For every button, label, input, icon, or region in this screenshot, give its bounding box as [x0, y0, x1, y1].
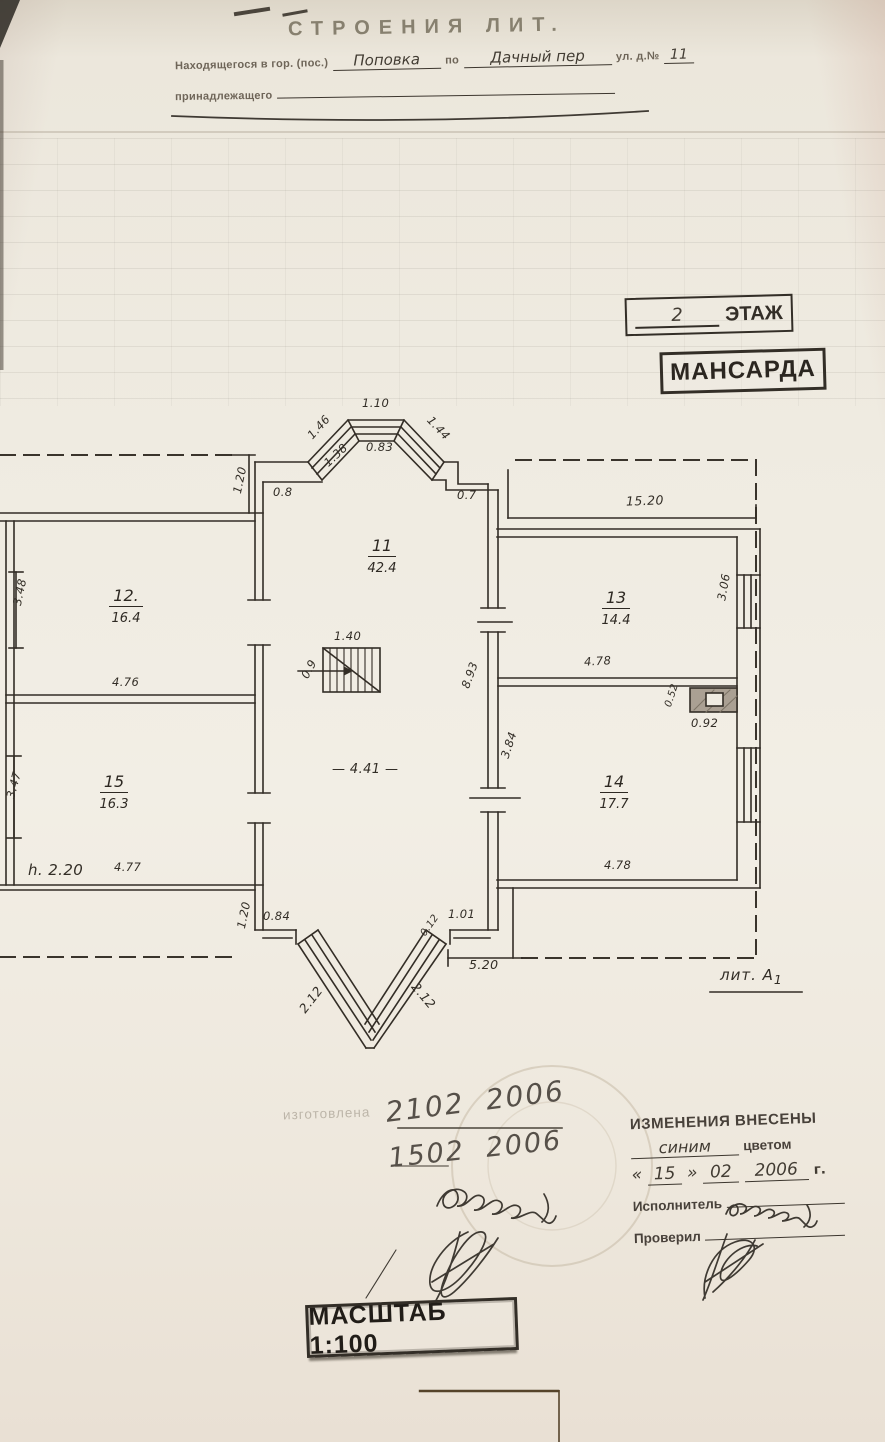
executor-line: Исполнитель	[632, 1188, 873, 1216]
house-number-fill: 11	[664, 46, 694, 64]
quote-left: «	[631, 1165, 642, 1185]
dim-room14-width: 4.78	[604, 858, 631, 872]
dim-room13-width: 4.78	[584, 653, 612, 668]
dim-bottom-right-step: 1.01	[448, 907, 475, 921]
signature-tail	[366, 1250, 396, 1298]
scanned-floorplan-page: СТРОЕНИЯ ЛИТ. Находящегося в гор. (пос.)…	[0, 0, 885, 1442]
room-number: 15	[100, 772, 128, 793]
room-label-15: 15 16.3	[84, 772, 144, 812]
dim-stairs-width: 1.40	[334, 629, 361, 643]
checker-fill-blank	[705, 1221, 845, 1241]
settlement-fill: Поповка	[332, 50, 440, 71]
checker-label: Проверил	[634, 1229, 701, 1246]
changes-month: 02	[703, 1161, 740, 1183]
checker-line: Проверил	[634, 1220, 875, 1248]
quote-right: »	[687, 1163, 698, 1183]
room-label-13: 13 14.4	[586, 588, 646, 628]
page-title: СТРОЕНИЯ ЛИТ.	[288, 14, 566, 42]
changes-color-suffix: цветом	[743, 1137, 792, 1154]
dim-room15-width: 4.77	[114, 860, 141, 874]
scale-stamp: МАСШТАБ 1:100	[305, 1297, 519, 1358]
dashed-roof-outline	[0, 455, 756, 958]
faint-printed-text: изготовлена	[283, 1104, 371, 1122]
floor-number-stamp: 2 ЭТАЖ	[625, 294, 794, 336]
owner-label: принадлежащего	[175, 90, 273, 103]
dim-height-note: h. 2.20	[28, 861, 83, 879]
signature-note-1	[437, 1189, 556, 1223]
hall-walls	[248, 462, 505, 930]
room-label-14: 14 17.7	[584, 772, 644, 812]
room-area: 16.4	[112, 611, 141, 626]
dim-bay-top-inner: 0.83	[366, 440, 393, 454]
changes-year-suffix: г.	[813, 1161, 826, 1177]
changes-color-line: синим цветом	[630, 1131, 871, 1159]
lit-label: лит. А	[720, 966, 774, 984]
street-fill: Дачный пер	[463, 46, 611, 68]
changes-color-fill: синим	[630, 1135, 739, 1159]
left-rooms-walls	[0, 513, 263, 890]
dim-bottom-left-step: 0.84	[263, 909, 290, 923]
bay-window-top	[255, 420, 498, 490]
dim-right-return: 0.7	[457, 488, 477, 502]
lit-sub: 1	[774, 972, 783, 987]
floor-label: ЭТАЖ	[725, 302, 783, 327]
changes-stamp: ИЗМЕНЕНИЯ ВНЕСЕНЫ синим цветом « 15 » 02…	[630, 1108, 875, 1254]
room-label-12: 12. 16.4	[96, 586, 156, 626]
changes-date-line: « 15 » 02 2006 г.	[631, 1157, 872, 1186]
room-area: 16.3	[100, 797, 129, 812]
room-area: 14.4	[602, 613, 631, 628]
dim-left-return: 0.8	[273, 485, 293, 499]
dim-bay-top: 1.10	[362, 396, 389, 410]
floor-number-fill: 2	[635, 303, 720, 328]
street-suffix-label: ул. д.№	[616, 50, 660, 63]
executor-label: Исполнитель	[633, 1196, 723, 1214]
bay-window-bottom	[255, 930, 498, 1048]
bottom-table-lines	[420, 1391, 559, 1442]
room-number: 14	[600, 772, 628, 793]
dim-right-wing-width: 15.20	[626, 492, 664, 508]
room-number: 12.	[109, 586, 142, 607]
room-area: 42.4	[368, 561, 397, 576]
room-number: 13	[602, 588, 630, 609]
dim-bottom-width: 5.20	[469, 957, 498, 972]
executor-fill-blank	[726, 1189, 844, 1208]
stove	[690, 688, 737, 712]
address-mid-label: по	[445, 54, 459, 66]
lit-annotation: лит. А1	[720, 966, 783, 987]
room-number: 11	[368, 536, 396, 557]
dim-room12-width: 4.76	[112, 675, 139, 689]
header-rule-lines	[172, 111, 648, 120]
dim-stove-depth: 0.92	[691, 716, 718, 730]
room-label-11: 11 42.4	[352, 536, 412, 576]
changes-year: 2006	[744, 1159, 809, 1182]
address-prefix-label: Находящегося в гор. (пос.)	[175, 57, 328, 72]
changes-day: 15	[647, 1163, 682, 1185]
room-area: 17.7	[600, 797, 629, 812]
dim-hall-width: — 4.41 —	[332, 762, 398, 777]
mansarda-stamp: МАНСАРДА	[659, 348, 826, 395]
